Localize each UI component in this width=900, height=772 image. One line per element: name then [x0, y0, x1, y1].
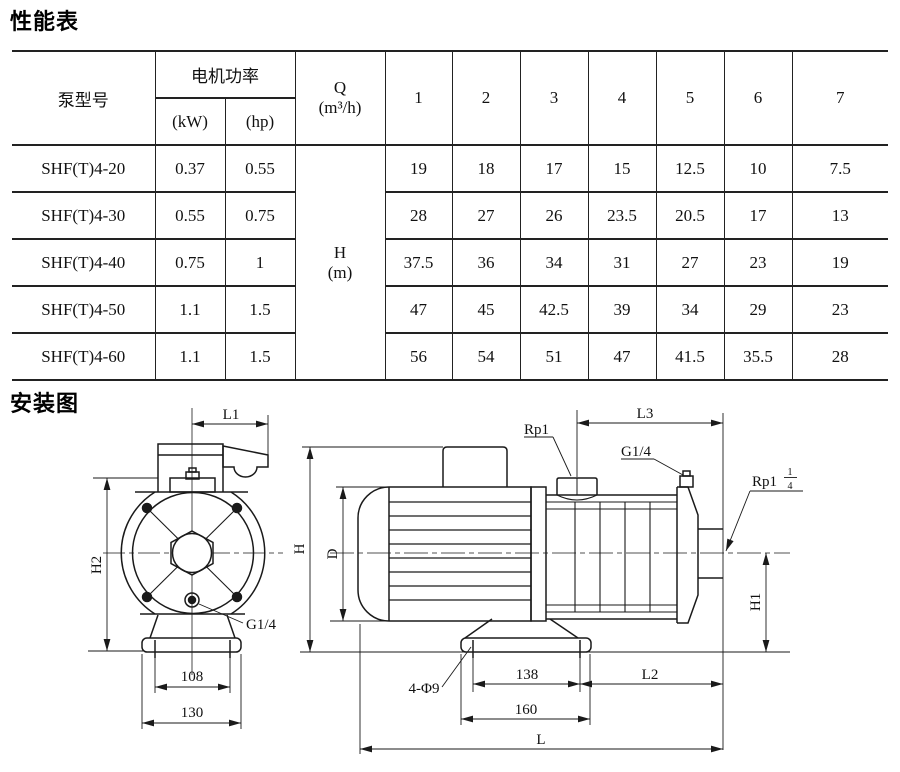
cell-head: 26: [520, 192, 588, 239]
cell-hp: 1.5: [225, 333, 295, 380]
cell-head: 28: [385, 192, 452, 239]
col-header-kw: (kW): [155, 98, 225, 145]
cell-head: 17: [724, 192, 792, 239]
cell-head: 19: [792, 239, 888, 286]
cell-head: 23.5: [588, 192, 656, 239]
col-header-motor-power: 电机功率: [155, 51, 295, 98]
cell-head: 28: [792, 333, 888, 380]
holes-label: 4-Φ9: [409, 681, 440, 697]
pump-casing: [546, 495, 677, 619]
cell-hp: 0.75: [225, 192, 295, 239]
datasheet-page: 性能表 泵型号 电机功率 Q (m³/h) 1 2 3 4 5 6 7 (kW)…: [0, 0, 900, 772]
d-label: D: [325, 548, 341, 559]
cell-head: 35.5: [724, 333, 792, 380]
motor-body: [358, 487, 531, 621]
head-symbol: H: [334, 243, 346, 262]
col-header-q2: 2: [452, 51, 520, 145]
cell-head: 15: [588, 145, 656, 192]
cell-model: SHF(T)4-20: [12, 145, 155, 192]
front-drain-plug-inner: [189, 597, 196, 604]
vent-plug-cap: [683, 471, 690, 476]
holes-leader: [442, 647, 471, 687]
cell-hp: 0.55: [225, 145, 295, 192]
rp114-leader: [726, 491, 750, 551]
cell-head: 13: [792, 192, 888, 239]
dim130-label: 130: [181, 705, 204, 721]
motor-flange: [531, 487, 546, 621]
cell-head: 19: [385, 145, 452, 192]
cell-head: 54: [452, 333, 520, 380]
side-pedestal-left: [465, 619, 492, 638]
cell-head: 51: [520, 333, 588, 380]
dim108-label: 108: [181, 669, 204, 685]
performance-table: 泵型号 电机功率 Q (m³/h) 1 2 3 4 5 6 7 (kW) (hp…: [12, 50, 888, 381]
cell-model: SHF(T)4-30: [12, 192, 155, 239]
side-base-plate: [461, 638, 591, 652]
col-header-q3: 3: [520, 51, 588, 145]
cell-head: 56: [385, 333, 452, 380]
pump-end-cap: [677, 487, 698, 623]
table-row: SHF(T)4-40 0.75 1 37.5 36 34 31 27 23 19: [12, 239, 888, 286]
front-pedestal-left: [150, 615, 158, 638]
cell-head: 27: [656, 239, 724, 286]
side-g14-label: G1/4: [621, 444, 652, 460]
front-g14-label: G1/4: [246, 617, 277, 633]
cell-head: 47: [385, 286, 452, 333]
table-row: SHF(T)4-30 0.55 0.75 28 27 26 23.5 20.5 …: [12, 192, 888, 239]
cell-kw: 0.37: [155, 145, 225, 192]
front-pedestal-right: [227, 615, 235, 638]
cell-head: 39: [588, 286, 656, 333]
rp114-numerator: 1: [788, 467, 793, 478]
cell-head: 47: [588, 333, 656, 380]
flow-unit: (m³/h): [319, 98, 362, 117]
front-top-plug-cap: [189, 468, 196, 472]
table-row: SHF(T)4-50 1.1 1.5 47 45 42.5 39 34 29 2…: [12, 286, 888, 333]
cell-kw: 0.55: [155, 192, 225, 239]
cell-model: SHF(T)4-40: [12, 239, 155, 286]
l-label: L: [536, 732, 545, 748]
head-unit-cell: H (m): [295, 145, 385, 380]
side-pedestal-right: [550, 619, 578, 638]
performance-table-title: 性能表: [10, 4, 79, 36]
front-base-plate: [142, 638, 241, 652]
cell-head: 42.5: [520, 286, 588, 333]
rp114-label: Rp1: [752, 474, 777, 490]
cell-head: 34: [656, 286, 724, 333]
front-bolt-top-right: [233, 504, 242, 513]
motor-fins: [389, 502, 531, 600]
col-header-hp: (hp): [225, 98, 295, 145]
cell-head: 17: [520, 145, 588, 192]
cell-head: 31: [588, 239, 656, 286]
flow-symbol: Q: [334, 78, 346, 97]
cell-head: 29: [724, 286, 792, 333]
cell-head: 37.5: [385, 239, 452, 286]
cell-kw: 1.1: [155, 286, 225, 333]
cell-head: 18: [452, 145, 520, 192]
pump-front-view: L1 H2 108 130 G1/4: [88, 407, 283, 729]
cell-head: 23: [724, 239, 792, 286]
col-header-q6: 6: [724, 51, 792, 145]
table-row: SHF(T)4-20 0.37 0.55 H (m) 19 18 17 15 1…: [12, 145, 888, 192]
col-header-q1: 1: [385, 51, 452, 145]
cell-hp: 1: [225, 239, 295, 286]
vent-plug: [680, 476, 693, 487]
front-bolt-bottom-left: [143, 593, 152, 602]
front-terminal-block: [170, 478, 215, 492]
dim138-label: 138: [516, 667, 539, 683]
h1-label: H1: [748, 593, 764, 611]
cell-head: 20.5: [656, 192, 724, 239]
cell-head: 23: [792, 286, 888, 333]
side-g14-leader: [654, 459, 683, 475]
table-row: SHF(T)4-60 1.1 1.5 56 54 51 47 41.5 35.5…: [12, 333, 888, 380]
col-header-pump-model: 泵型号: [12, 51, 155, 145]
cell-head: 27: [452, 192, 520, 239]
l3-label: L3: [637, 406, 654, 422]
front-bolt-bottom-right: [233, 593, 242, 602]
cell-head: 10: [724, 145, 792, 192]
cell-head: 36: [452, 239, 520, 286]
cell-head: 34: [520, 239, 588, 286]
l1-label: L1: [223, 407, 240, 423]
h-label: H: [292, 543, 308, 554]
side-junction-box: [443, 447, 507, 487]
cell-hp: 1.5: [225, 286, 295, 333]
col-header-q7: 7: [792, 51, 888, 145]
cell-head: 12.5: [656, 145, 724, 192]
h2-label: H2: [89, 556, 105, 574]
front-bolt-top-left: [143, 504, 152, 513]
col-header-q4: 4: [588, 51, 656, 145]
cell-head: 45: [452, 286, 520, 333]
rp1-leader: [553, 437, 571, 476]
cell-head: 41.5: [656, 333, 724, 380]
pump-side-view: L3 Rp1 G1/4 Rp1 1 4 H D: [292, 406, 803, 754]
cell-model: SHF(T)4-50: [12, 286, 155, 333]
installation-drawing: L1 H2 108 130 G1/4: [0, 392, 900, 772]
col-header-q5: 5: [656, 51, 724, 145]
l2-label: L2: [642, 667, 659, 683]
dim160-label: 160: [515, 702, 538, 718]
cell-kw: 0.75: [155, 239, 225, 286]
cell-model: SHF(T)4-60: [12, 333, 155, 380]
cell-kw: 1.1: [155, 333, 225, 380]
col-header-flow: Q (m³/h): [295, 51, 385, 145]
head-unit: (m): [328, 263, 353, 282]
front-spout: [223, 446, 268, 477]
rp114-denominator: 4: [788, 481, 793, 492]
cell-head: 7.5: [792, 145, 888, 192]
rp1-label: Rp1: [524, 422, 549, 438]
header-row-1: 泵型号 电机功率 Q (m³/h) 1 2 3 4 5 6 7: [12, 51, 888, 98]
